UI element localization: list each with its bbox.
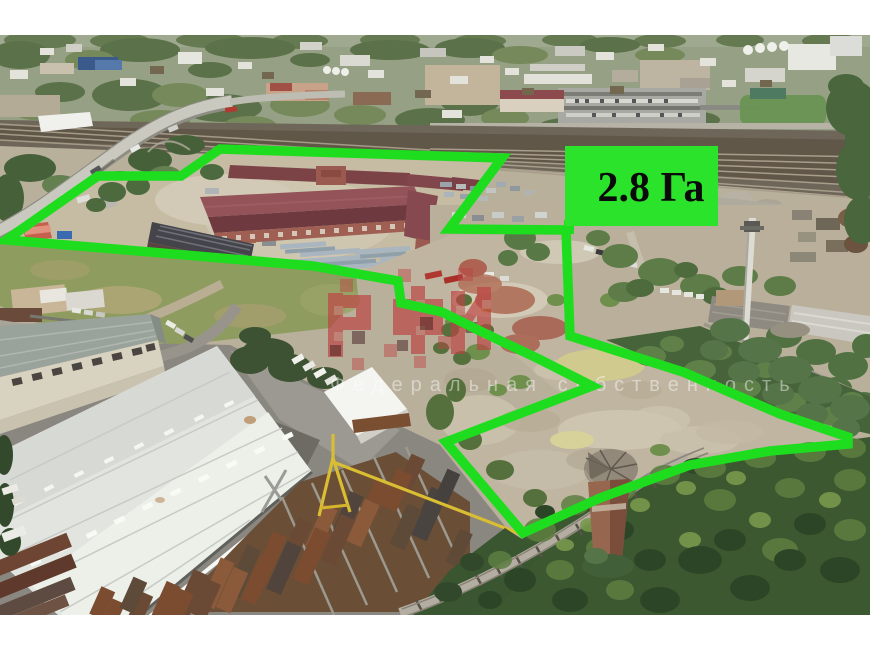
svg-text:2.8 Га: 2.8 Га xyxy=(597,165,704,211)
